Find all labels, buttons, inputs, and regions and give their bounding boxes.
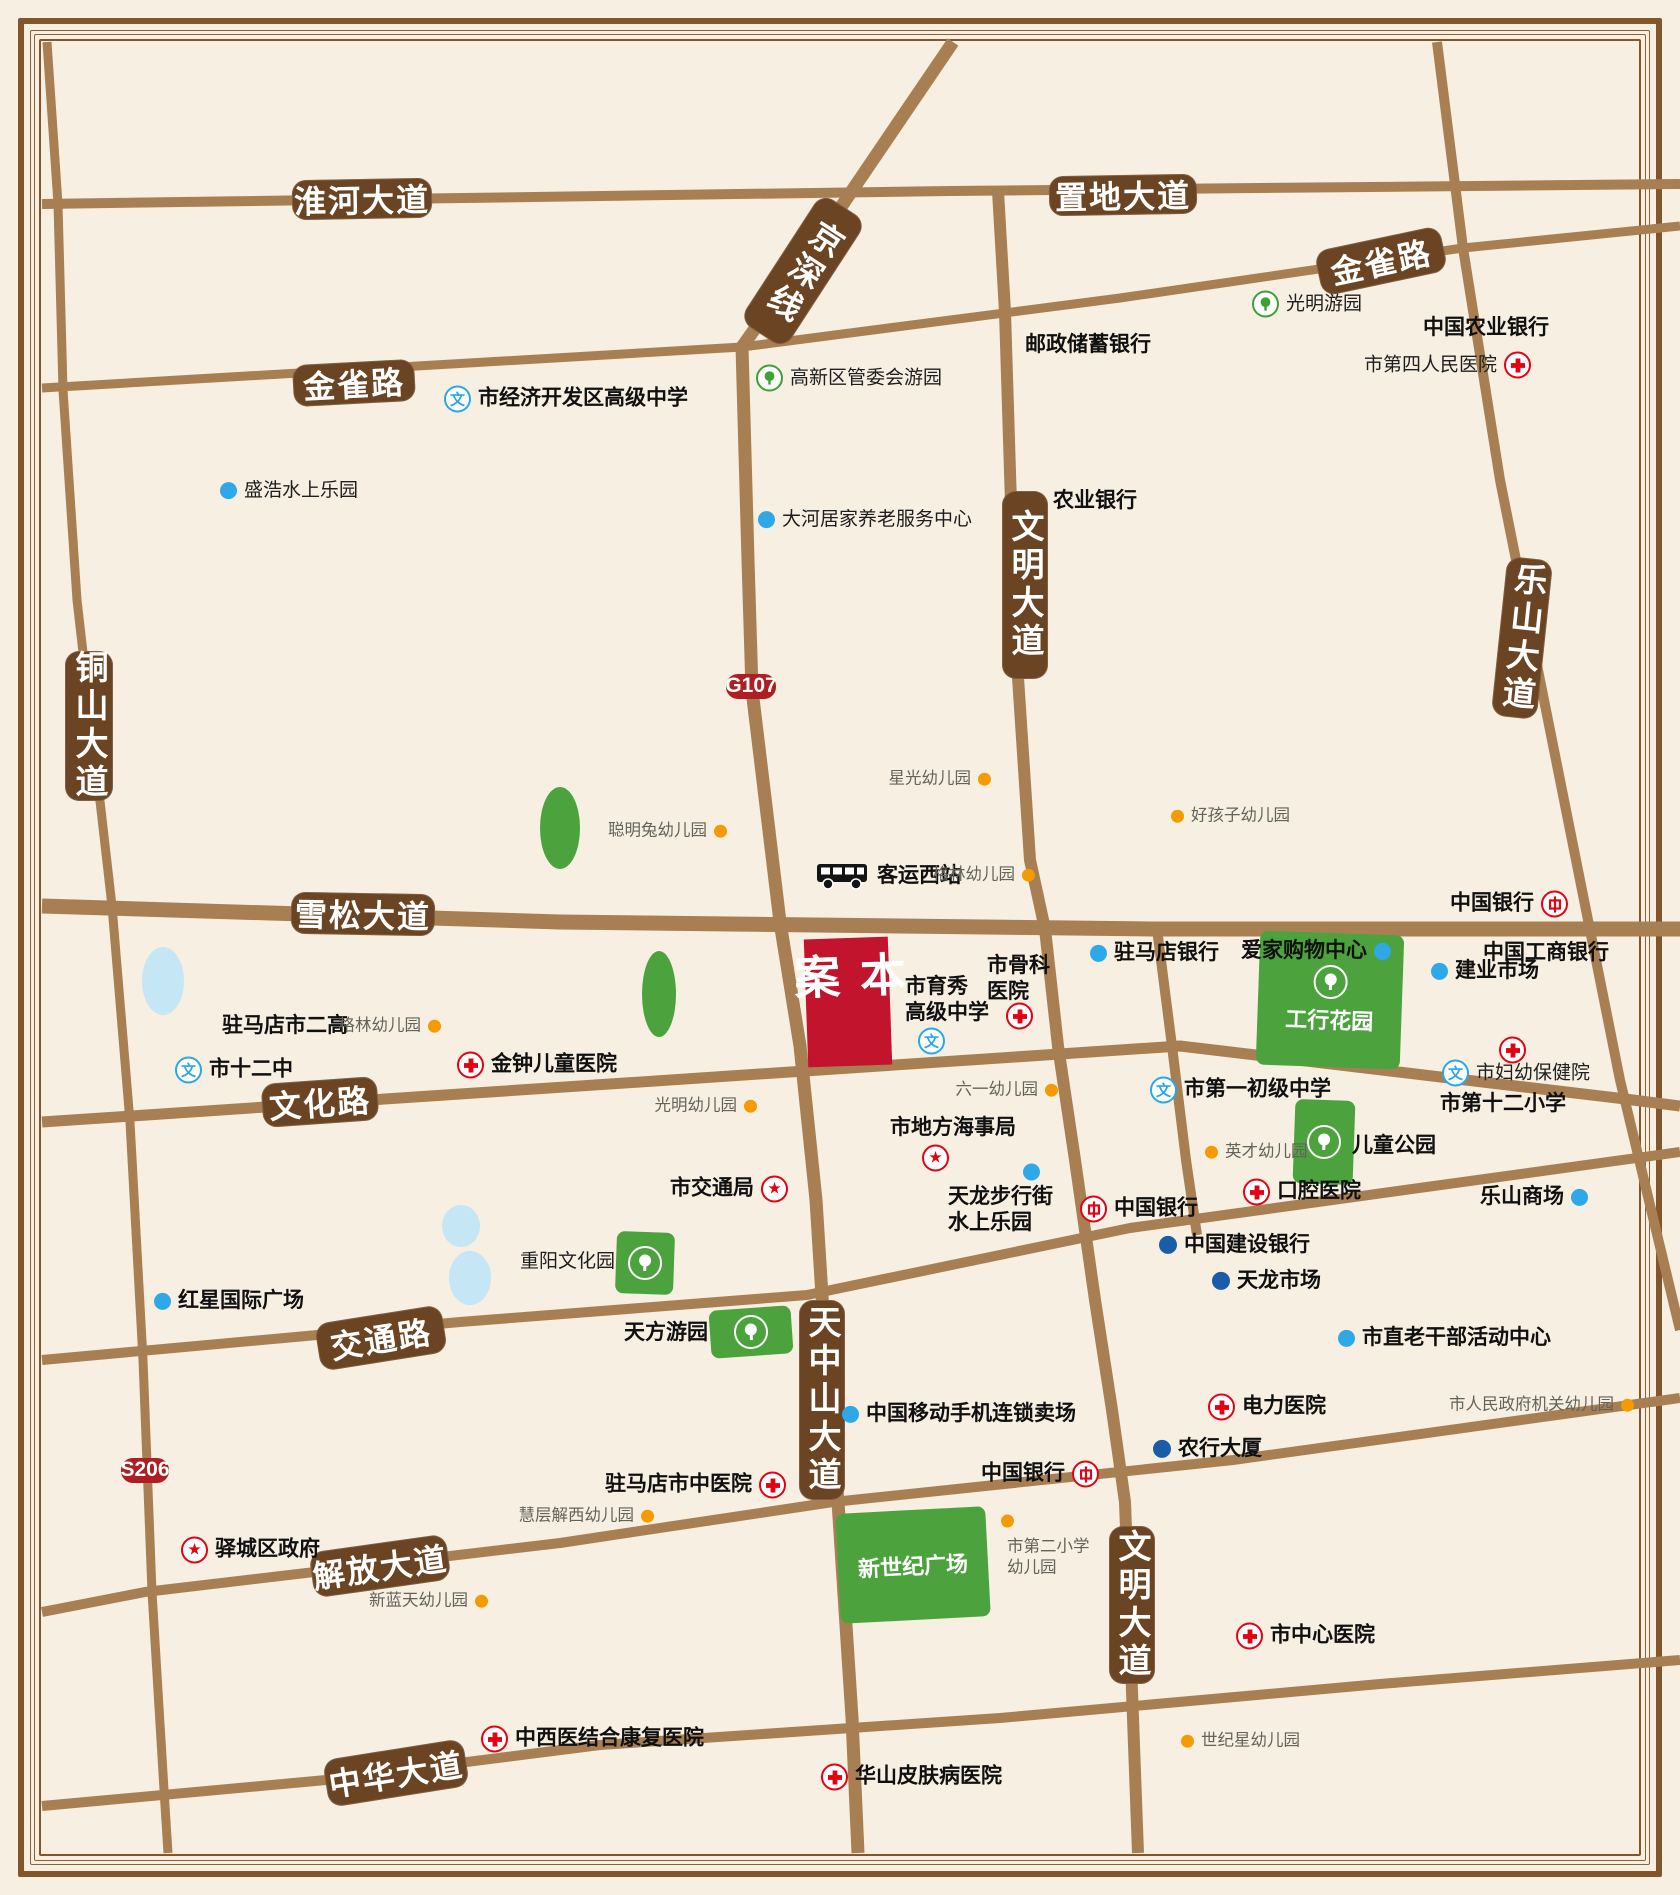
poi-label: 市直老干部活动中心 [1362,1325,1551,1351]
poi-label: 驻马店银行 [1114,940,1219,966]
park-tree-icon [733,1314,769,1350]
poi-label: 市第一初级中学 [1184,1077,1331,1103]
poi-label: 中国银行 [1114,1196,1198,1222]
poi: 中国银行 [981,1461,1099,1488]
hospital-icon [481,1726,508,1753]
poi: 慧层解西幼儿园 [519,1506,655,1527]
poi: 盛浩水上乐园 [220,479,358,503]
poi-label: 市第十二小学 [1440,1091,1566,1117]
bank-of-china-icon [1541,891,1568,918]
blue-dot [1090,945,1107,962]
poi: 市第十二小学 [1440,1091,1566,1117]
poi-label: 六一幼儿园 [956,1080,1039,1101]
dark-blue-dot [1159,1236,1177,1254]
poi: 市人民政府机关幼儿园 [1449,1395,1634,1416]
site-marker: 本案 [804,937,892,1068]
road-label: 雪松大道 [291,892,436,937]
dark-blue-dot [1153,1440,1171,1458]
poi-label: 中西医结合康复医院 [515,1726,704,1752]
poi: 新蓝天幼儿园 [369,1591,488,1612]
poi: 市直老干部活动中心 [1338,1325,1551,1351]
poi-label: 市人民政府机关幼儿园 [1449,1395,1614,1416]
poi-label: 中国农业银行 [1423,315,1549,341]
government-star-icon: ★ [181,1537,208,1564]
poi: 中国银行 [1450,891,1568,918]
poi-label: 市第二小学幼儿园 [1007,1536,1090,1577]
poi-label: 重阳文化园 [520,1250,615,1274]
poi-label: 邮政储蓄银行 [1025,332,1151,358]
poi: 格林幼儿园 [339,1016,442,1037]
poi-label: 建业市场 [1455,958,1539,984]
pond [142,947,184,1015]
poi: 驻马店银行 [1090,940,1219,966]
road [42,906,1680,929]
poi: 市第四人民医院 [1364,352,1531,379]
blue-dot [1374,943,1391,960]
orange-dot [1171,810,1184,823]
road-label: 铜山大道 [65,651,113,801]
poi: 文市第一初级中学 [1150,1077,1331,1104]
poi: ★ [922,1145,949,1172]
poi: 六一幼儿园 [956,1080,1059,1101]
poi: 口腔医院 [1243,1179,1361,1206]
poi: 大河居家养老服务中心 [758,508,972,532]
park [615,1231,675,1295]
poi: 星光幼儿园 [889,769,992,790]
poi: 中国银行 [1080,1196,1198,1223]
poi: 儿童公园 [1352,1133,1436,1159]
blue-dot [758,512,775,529]
poi-label: 市妇幼保健院 [1476,1061,1590,1085]
pond [442,1205,480,1247]
school-icon: 文 [1442,1060,1469,1087]
poi-label: 乐山商场 [1480,1184,1564,1210]
poi-label: 新蓝天幼儿园 [369,1591,468,1612]
poi [1006,1003,1033,1030]
poi: 邮政储蓄银行 [1025,332,1151,358]
orange-dot [744,1100,757,1113]
park-tree-icon [1313,964,1348,999]
poi: 驻马店市中医院 [605,1472,786,1499]
poi: 天方游园 [624,1320,708,1346]
poi: 红星国际广场 [154,1288,304,1314]
site-label: 本案 [780,950,916,1069]
poi: 光明幼儿园 [655,1096,758,1117]
poi-label: 市经济开发区高级中学 [478,386,688,412]
bus-station-icon [816,861,870,891]
blue-dot [220,483,237,500]
park [708,1305,793,1359]
hospital-icon [821,1764,848,1791]
orange-dot [978,773,991,786]
poi-label: 光明幼儿园 [655,1096,738,1117]
poi-label: 英才幼儿园 [1225,1142,1308,1163]
park-label: 新世纪广场 [857,1546,969,1584]
park-tree-icon [756,365,783,392]
road-label: 淮河大道 [292,178,433,220]
hospital-icon [1504,352,1531,379]
poi-label: 市交通局 [670,1176,754,1202]
road [47,42,168,1853]
poi: 文 [918,1028,945,1055]
pond [449,1251,491,1305]
poi: 市第二小学幼儿园 [1007,1536,1090,1577]
poi-label: 天方游园 [624,1320,708,1346]
government-star-icon: ★ [922,1145,949,1172]
poi-label: 电力医院 [1242,1394,1326,1420]
poi: 天龙市场 [1212,1268,1321,1294]
poi: 英才幼儿园 [1205,1142,1308,1163]
poi [1023,1164,1040,1181]
blue-dot [1431,963,1448,980]
poi-label: 世纪星幼儿园 [1201,1731,1300,1752]
poi-label: 爱家购物中心 [1241,938,1367,964]
blue-dot [842,1406,859,1423]
green-area [642,951,676,1037]
hospital-icon [457,1052,484,1079]
green-area [540,787,580,869]
poi: 重阳文化园 [520,1250,615,1274]
poi-label: 中国移动手机连锁卖场 [866,1401,1076,1427]
poi-label: 盛浩水上乐园 [244,479,358,503]
orange-dot [641,1510,654,1523]
blue-dot [154,1293,171,1310]
poi-label: 红星国际广场 [178,1288,304,1314]
school-icon: 文 [918,1028,945,1055]
poi: 文市经济开发区高级中学 [444,386,688,413]
poi-label: 市十二中 [209,1057,293,1083]
orange-dot [475,1595,488,1608]
poi: 聪明兔幼儿园 [608,821,727,842]
poi: 建业市场 [1431,958,1539,984]
school-icon: 文 [1150,1077,1177,1104]
park-tree-icon [627,1245,662,1280]
park: 新世纪广场 [835,1506,991,1624]
map-stage: 工行花园新世纪广场本案淮河大道置地大道金雀路金雀路京深线铜山大道文明大道乐山大道… [0,0,1680,1895]
poi: 金钟儿童医院 [457,1052,617,1079]
hospital-icon [1243,1179,1270,1206]
poi-label: 中国建设银行 [1184,1232,1310,1258]
poi: ★驿城区政府 [181,1537,320,1564]
park-label: 工行花园 [1285,1001,1374,1036]
poi: 驻马店市二高 [222,1013,348,1039]
orange-dot [1001,1515,1014,1528]
orange-dot [1022,869,1035,882]
poi-label: 市骨科医院 [987,953,1050,1006]
road-label: 文明大道 [1002,491,1048,679]
poi: 华山皮肤病医院 [821,1764,1002,1791]
poi: 光明游园 [1252,291,1362,318]
orange-dot [1181,1735,1194,1748]
poi: 天龙步行街水上乐园 [948,1184,1053,1237]
poi-label: 市地方海事局 [890,1115,1016,1141]
poi-label: 格林幼儿园 [339,1016,422,1037]
poi: 中国农业银行 [1423,315,1549,341]
poi: 格林幼儿园 [933,865,1036,886]
road-label: 置地大道 [1049,174,1198,217]
poi: 高新区管委会游园 [756,365,942,392]
road-label: 文化路 [261,1076,380,1128]
poi-label: 驻马店市中医院 [605,1472,752,1498]
blue-dot [1571,1189,1588,1206]
poi: 农业银行 [1053,488,1137,514]
poi: 文市十二中 [175,1057,293,1084]
poi: 中国移动手机连锁卖场 [842,1401,1076,1427]
poi-label: 光明游园 [1286,292,1362,316]
poi: 市育秀高级中学 [905,974,989,1027]
blue-dot [1338,1330,1355,1347]
poi: 市地方海事局 [890,1115,1016,1141]
poi-label: 驿城区政府 [215,1537,320,1563]
poi: 市骨科医院 [987,953,1050,1006]
road-label: 天中山大道 [799,1300,845,1500]
poi-label: 市育秀高级中学 [905,974,989,1027]
orange-dot [714,825,727,838]
poi-label: 中国银行 [1450,891,1534,917]
poi-label: 天龙步行街水上乐园 [948,1184,1053,1237]
orange-dot [1045,1084,1058,1097]
poi: 中国建设银行 [1159,1232,1310,1258]
bank-of-china-icon [1080,1196,1107,1223]
school-icon: 文 [444,386,471,413]
orange-dot [1621,1399,1634,1412]
poi-label: 市中心医院 [1270,1623,1375,1649]
blue-dot [1023,1164,1040,1181]
poi-label: 驻马店市二高 [222,1013,348,1039]
poi-label: 大河居家养老服务中心 [782,508,972,532]
poi-label: 金钟儿童医院 [491,1052,617,1078]
poi-label: 农业银行 [1053,488,1137,514]
poi: 文市妇幼保健院 [1442,1060,1590,1087]
poi-label: 好孩子幼儿园 [1191,806,1290,827]
poi-label: 中国银行 [981,1461,1065,1487]
poi-label: 慧层解西幼儿园 [519,1506,635,1527]
poi-label: 市第四人民医院 [1364,353,1497,377]
hospital-icon [1208,1394,1235,1421]
poi-label: 星光幼儿园 [889,769,972,790]
poi: 好孩子幼儿园 [1171,806,1290,827]
poi: 世纪星幼儿园 [1181,1731,1300,1752]
poi-label: 口腔医院 [1277,1179,1361,1205]
poi-label: 农行大厦 [1178,1436,1262,1462]
route-badge: S206 [121,1458,169,1483]
hospital-icon [759,1472,786,1499]
poi-label: 儿童公园 [1352,1133,1436,1159]
park-tree-icon [1252,291,1279,318]
school-icon: 文 [175,1057,202,1084]
orange-dot [428,1020,441,1033]
park-tree-icon [1306,1124,1341,1159]
government-star-icon: ★ [761,1176,788,1203]
dark-blue-dot [1212,1272,1230,1290]
poi-label: 聪明兔幼儿园 [608,821,707,842]
hospital-icon [1236,1623,1263,1650]
poi: 电力医院 [1208,1394,1326,1421]
poi-label: 格林幼儿园 [933,865,1016,886]
poi: 市中心医院 [1236,1623,1375,1650]
poi: 中西医结合康复医院 [481,1726,704,1753]
poi-label: 华山皮肤病医院 [855,1764,1002,1790]
poi: 乐山商场 [1480,1184,1588,1210]
bank-of-china-icon [1072,1461,1099,1488]
poi: 农行大厦 [1153,1436,1262,1462]
hospital-icon [1006,1003,1033,1030]
poi-label: 天龙市场 [1237,1268,1321,1294]
road-label: 金雀路 [292,359,416,407]
poi: 爱家购物中心 [1241,938,1391,964]
road-label: 文明大道 [1109,1526,1155,1684]
route-badge: G107 [726,674,776,699]
orange-dot [1205,1146,1218,1159]
poi [1001,1515,1014,1528]
poi: ★市交通局 [670,1176,788,1203]
poi-label: 高新区管委会游园 [790,366,942,390]
